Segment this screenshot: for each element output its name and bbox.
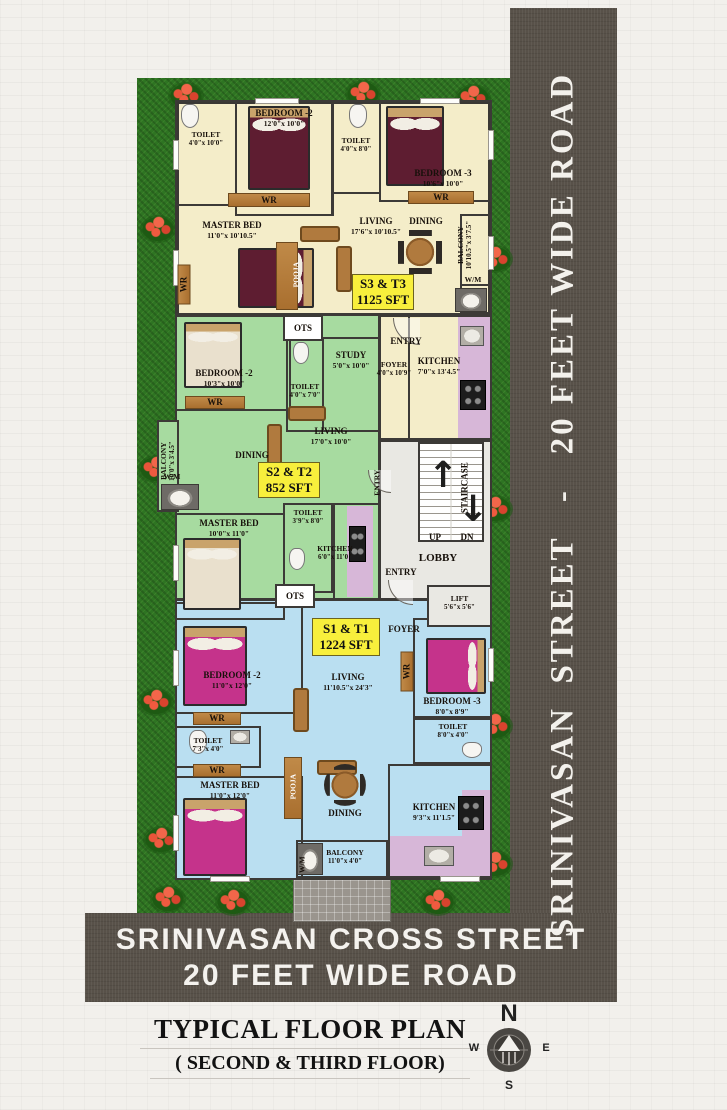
- badge-name: S1 & T1: [313, 621, 379, 637]
- wr-label: WR: [229, 194, 309, 206]
- toilet-wc-icon: [293, 342, 309, 364]
- kitchen-sink-icon: [424, 846, 454, 866]
- room-name: MASTER BED: [190, 780, 270, 791]
- wm-label-s1: W/M: [297, 849, 306, 881]
- room-name: FOYER: [380, 624, 428, 635]
- road-horizontal-line1: SRINIVASAN CROSS STREET: [116, 922, 587, 958]
- room-label-master-s1: MASTER BED 11'0"x 12'0": [190, 780, 270, 801]
- window: [173, 545, 179, 581]
- room-label-balcony-s1: BALCONY 11'0"x 4'0": [314, 848, 376, 866]
- window: [255, 98, 299, 104]
- room-name: MASTER BED: [184, 518, 274, 529]
- compass-icon: [486, 1027, 532, 1073]
- wr-label: WR: [194, 713, 240, 724]
- wardrobe-strip: WR: [178, 265, 191, 305]
- pooja-label: POOJA: [291, 245, 300, 305]
- flower-icon: [420, 888, 456, 916]
- room-dims: 10'3"x 10'0": [188, 379, 260, 388]
- page-subtitle: ( SECOND & THIRD FLOOR): [150, 1052, 470, 1079]
- badge-name: S2 & T2: [259, 464, 319, 480]
- dn-text: DN: [454, 532, 480, 543]
- wardrobe-strip: WR: [193, 712, 241, 725]
- room-dims: 10'10.5"x 3'7.5": [465, 208, 474, 282]
- room-dims: 11'0"x 4'0": [314, 857, 376, 866]
- driveway: [293, 876, 391, 922]
- flower-icon: [150, 885, 186, 913]
- sofa-icon: [293, 688, 309, 732]
- compass-east-label: E: [539, 1042, 553, 1054]
- wardrobe-strip: WR: [401, 652, 414, 692]
- window: [488, 648, 494, 682]
- room-name: TOILET: [286, 382, 324, 391]
- room-dims: 11'0"x 12'0": [196, 681, 268, 690]
- flower-icon: [215, 888, 251, 916]
- room-name: BALCONY: [314, 848, 376, 857]
- room-name: TOILET: [182, 736, 234, 745]
- wardrobe-strip: WR: [193, 764, 241, 777]
- stairs-dn-label: DN: [454, 532, 480, 543]
- room-label-dining-s2: DINING: [226, 450, 278, 461]
- entry-label: ENTRY: [372, 460, 381, 506]
- room-label-foyer-s3: FOYER 4'0"x 10'9": [374, 360, 414, 378]
- room-label-foyer-s1: FOYER: [380, 624, 428, 635]
- room-label-bedroom2-s1: BEDROOM -2 11'0"x 12'0": [196, 670, 268, 691]
- room-dims: 17'0"x 10'0": [294, 437, 368, 446]
- room-label-bedroom2-s3: BEDROOM -2 12'0"x 10'0": [240, 108, 328, 129]
- unit-badge-s3t3: S3 & T3 1125 SFT: [352, 274, 414, 310]
- toilet-wc-icon: [462, 742, 482, 758]
- wm-label: W/M: [297, 849, 306, 881]
- entry-label: ENTRY: [382, 336, 430, 347]
- room-dims: 11'10.5"x 24'3": [308, 683, 388, 692]
- entry-label-s3: ENTRY: [382, 336, 430, 347]
- toilet-wc-icon: [289, 548, 305, 570]
- wm-label-s2: W/M: [155, 472, 189, 481]
- window: [440, 876, 480, 882]
- room-name: TOILET: [284, 508, 332, 517]
- wm-label-s3: W/M: [458, 275, 488, 284]
- wr-label: WR: [179, 266, 190, 304]
- room-name: BEDROOM -3: [412, 696, 492, 707]
- room-dims: 4'0"x 7'0": [286, 391, 324, 400]
- room-name: FOYER: [374, 360, 414, 369]
- room-label-kitchen-s3: KITCHEN 7'0"x 13'4.5": [410, 356, 468, 377]
- room-dims: 6'0"x 11'0": [306, 553, 364, 562]
- up-text: UP: [422, 532, 448, 543]
- pooja-label-s3: POOJA: [291, 245, 300, 305]
- badge-area: 852 SFT: [259, 480, 319, 496]
- room-name: TOILET: [332, 136, 380, 145]
- wr-label: WR: [194, 765, 240, 776]
- room-dims: 10'0"x 11'0": [184, 529, 274, 538]
- ots-label: OTS: [277, 586, 313, 606]
- room-dims: 7'0"x 13'4.5": [410, 367, 468, 376]
- pooja-label: POOJA: [288, 760, 297, 814]
- entry-label-lobby: ENTRY: [378, 567, 424, 578]
- stairs-up-label: UP: [422, 532, 448, 543]
- unit-badge-s1t1: S1 & T1 1224 SFT: [312, 618, 380, 656]
- room-name: KITCHEN: [306, 544, 364, 553]
- room-name: BEDROOM -2: [188, 368, 260, 379]
- room-name: BEDROOM -2: [240, 108, 328, 119]
- room-name: KITCHEN: [402, 802, 466, 813]
- room-dims: 8'0"x 4'0": [424, 731, 482, 740]
- room-name: TOILET: [424, 722, 482, 731]
- room-name: TOILET: [176, 130, 236, 139]
- page-title: TYPICAL FLOOR PLAN: [140, 1014, 480, 1049]
- wr-label: WR: [402, 653, 413, 691]
- window: [210, 876, 250, 882]
- room-label-kitchen-s1: KITCHEN 9'3"x 11'1.5": [402, 802, 466, 823]
- entry-label-s2: ENTRY: [372, 460, 381, 506]
- room-label-toilet2-s3: TOILET 4'0"x 8'0": [332, 136, 380, 154]
- room-label-toilet1-s2: TOILET 4'0"x 7'0": [286, 382, 324, 400]
- road-horizontal-label: SRINIVASAN CROSS STREET 20 FEET WIDE ROA…: [85, 913, 617, 1002]
- sofa-icon: [336, 246, 352, 292]
- toilet-wc-icon: [181, 104, 199, 128]
- wr-label: WR: [409, 192, 473, 203]
- lift-label: LIFT 5'6"x 5'6": [432, 594, 487, 612]
- wardrobe-strip: WR: [185, 396, 245, 409]
- room-label-dining-s3: DINING: [398, 216, 454, 227]
- room-name: BEDROOM -3: [398, 168, 488, 179]
- room-label-living-s1: LIVING 11'10.5"x 24'3": [308, 672, 388, 693]
- window: [173, 650, 179, 686]
- room-label-kitchen-s2: KITCHEN 6'0"x 11'0": [306, 544, 364, 562]
- ots-box-s3: OTS: [283, 315, 323, 341]
- room-dims: 9'3"x 11'1.5": [402, 813, 466, 822]
- dining-table-icon: [324, 764, 366, 806]
- wardrobe-strip: WR: [228, 193, 310, 207]
- room-dims: 3'9"x 8'0": [284, 517, 332, 526]
- wm-label: W/M: [458, 275, 488, 284]
- road-vertical-label: SRINIVASAN STREET - 20 FEET WIDE ROAD: [510, 8, 617, 1002]
- unit-badge-s2t2: S2 & T2 852 SFT: [258, 462, 320, 498]
- badge-area: 1125 SFT: [353, 292, 413, 308]
- pooja-label-s1: POOJA: [288, 760, 297, 814]
- badge-name: S3 & T3: [353, 276, 413, 292]
- room-name: LIVING: [294, 426, 368, 437]
- room-name: DINING: [318, 808, 372, 819]
- room-name: BEDROOM -2: [196, 670, 268, 681]
- room-dims: 5'0"x 10'0": [324, 361, 378, 370]
- room-dims: 7'3"x 4'0": [182, 745, 234, 754]
- room-name: BALCONY: [456, 208, 465, 282]
- room-label-balcony-s3: BALCONY 10'10.5"x 3'7.5": [456, 208, 474, 282]
- room-label-toilet1-s3: TOILET 4'0"x 10'0": [176, 130, 236, 148]
- room-label-toilet-left-s1: TOILET 7'3"x 4'0": [182, 736, 234, 754]
- room-label-bedroom2-s2: BEDROOM -2 10'3"x 10'0": [188, 368, 260, 389]
- sofa-icon: [300, 226, 340, 242]
- room-dims: 11'0"x 10'10.5": [182, 231, 282, 240]
- room-label-toilet2-s2: TOILET 3'9"x 8'0": [284, 508, 332, 526]
- window: [488, 130, 494, 160]
- room-name: DINING: [226, 450, 278, 461]
- stairs-down-arrow-icon: ↓: [458, 492, 488, 528]
- bed-icon: [183, 798, 247, 876]
- room-label-master-s2: MASTER BED 10'0"x 11'0": [184, 518, 274, 539]
- flower-icon: [140, 215, 176, 243]
- room-dims: 8'0"x 8'9": [412, 707, 492, 716]
- room-label-living-s2: LIVING 17'0"x 10'0": [294, 426, 368, 447]
- flower-icon: [138, 688, 174, 716]
- washing-machine-icon: [455, 288, 487, 312]
- room-dims: 4'0"x 10'9": [374, 369, 414, 378]
- room-dims: 4'0"x 10'0": [176, 139, 236, 148]
- toilet-wc-icon: [349, 104, 367, 128]
- wr-label: WR: [186, 397, 244, 408]
- room-dims: 11'0"x 12'0": [190, 791, 270, 800]
- room-name: DINING: [398, 216, 454, 227]
- bed-icon: [183, 538, 241, 610]
- room-label-bedroom3-s1: BEDROOM -3 8'0"x 8'9": [412, 696, 492, 717]
- window: [173, 815, 179, 851]
- floor-plan-page: SRINIVASAN STREET - 20 FEET WIDE ROAD SR…: [0, 0, 727, 1110]
- room-name: KITCHEN: [410, 356, 468, 367]
- wardrobe-strip: WR: [408, 191, 474, 204]
- compass-west-label: W: [467, 1042, 481, 1054]
- sofa-icon: [288, 406, 326, 421]
- room-label-balcony-s2: BALCONY 10'0"x 3'4.5": [159, 425, 177, 497]
- room-dims: 5'6"x 5'6": [432, 603, 487, 612]
- room-name: BALCONY: [159, 425, 168, 497]
- room-label-bedroom3-s3: BEDROOM -3 10'6"x 10'0": [398, 168, 488, 189]
- road-horizontal-line2: 20 FEET WIDE ROAD: [183, 958, 519, 994]
- room-dims: 10'6"x 10'0": [398, 179, 488, 188]
- room-label-toilet-right-s1: TOILET 8'0"x 4'0": [424, 722, 482, 740]
- room-name: STUDY: [324, 350, 378, 361]
- bed-icon: [183, 626, 247, 706]
- room-dims: 10'0"x 3'4.5": [168, 425, 177, 497]
- room-label-master-s3: MASTER BED 11'0"x 10'10.5": [182, 220, 282, 241]
- room-label-dining-s1: DINING: [318, 808, 372, 819]
- compass-north-label: N: [497, 1000, 521, 1028]
- kitchen-sink-icon: [460, 326, 484, 346]
- badge-area: 1224 SFT: [313, 637, 379, 653]
- stairs-up-arrow-icon: ↑: [428, 458, 458, 494]
- compass-south-label: S: [502, 1078, 516, 1092]
- lobby-text: LOBBY: [408, 552, 468, 566]
- wm-label: W/M: [155, 472, 189, 481]
- room-name: LIVING: [308, 672, 388, 683]
- room-name: LIFT: [432, 594, 487, 603]
- window: [420, 98, 460, 104]
- stove-icon: [460, 380, 486, 410]
- bed-icon: [426, 638, 486, 694]
- room-label-study-s2: STUDY 5'0"x 10'0": [324, 350, 378, 371]
- ots-box-s2: OTS: [275, 584, 315, 608]
- room-dims: 4'0"x 8'0": [332, 145, 380, 154]
- room-name: MASTER BED: [182, 220, 282, 231]
- ots-label: OTS: [285, 317, 321, 339]
- entry-label: ENTRY: [378, 567, 424, 578]
- lobby-label: LOBBY: [408, 552, 468, 566]
- room-dims: 17'6"x 10'10.5": [338, 227, 414, 236]
- room-dims: 12'0"x 10'0": [240, 119, 328, 128]
- window: [488, 236, 494, 270]
